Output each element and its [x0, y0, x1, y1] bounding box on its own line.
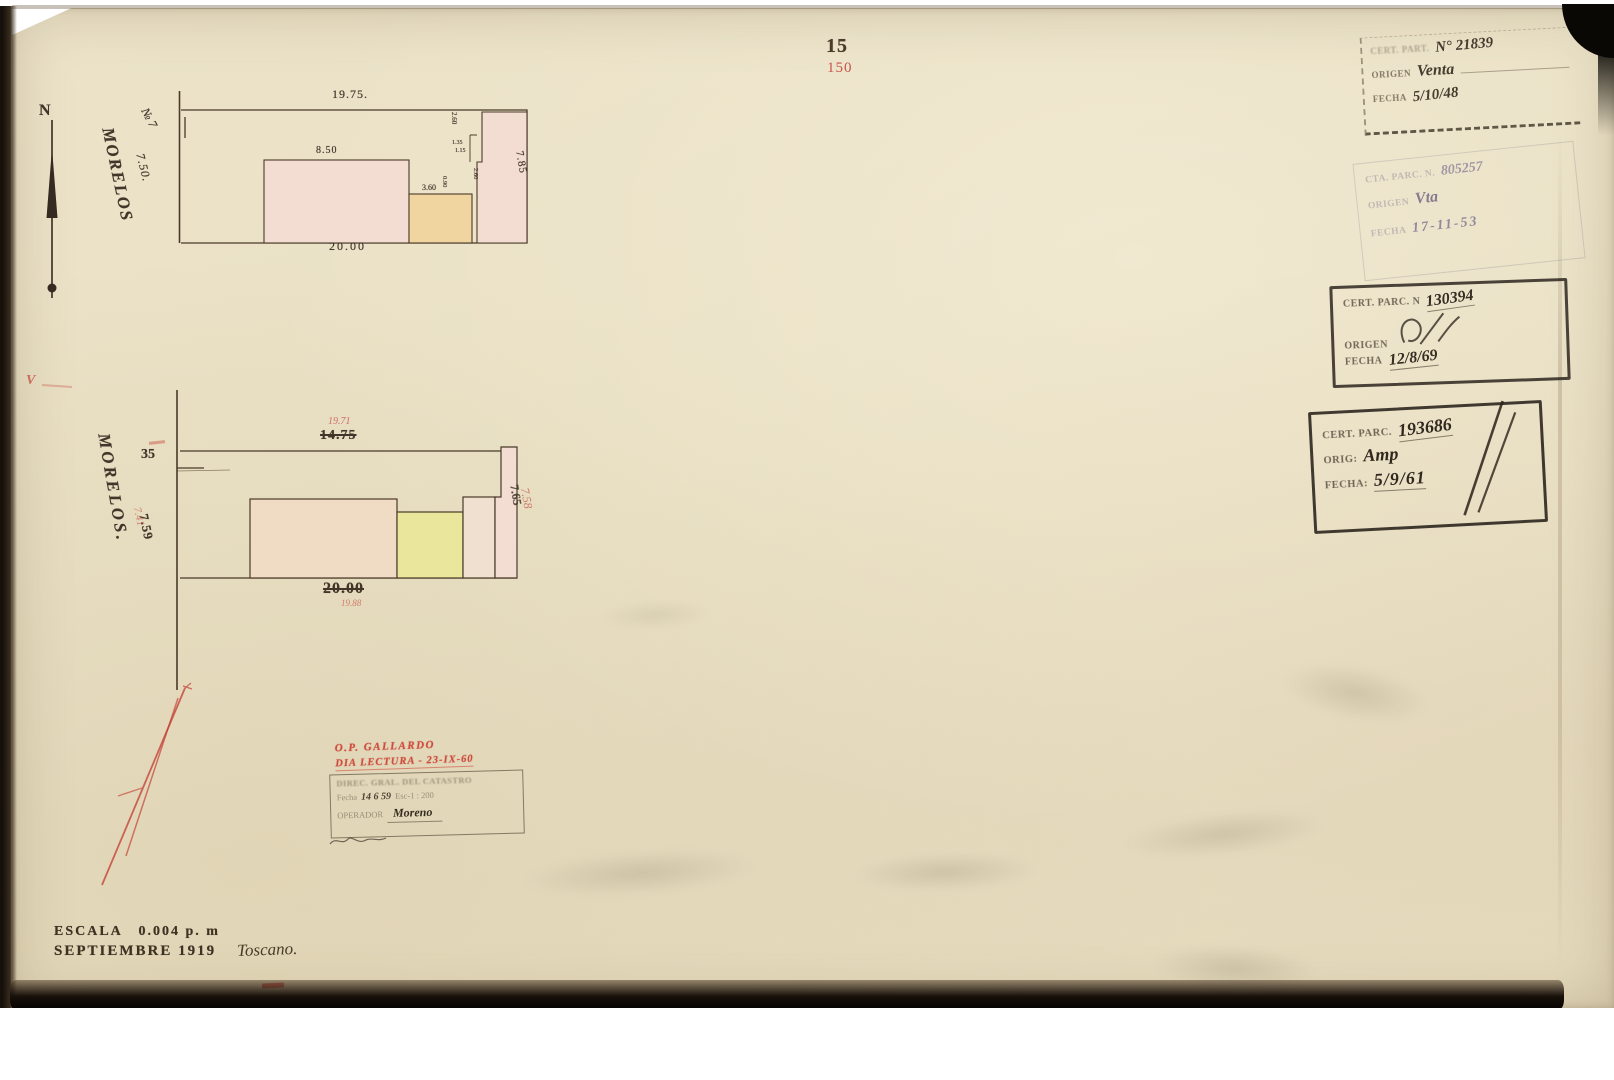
- cert-number: 805257: [1440, 159, 1483, 179]
- red-check-mark: V: [26, 374, 35, 388]
- fecha-value: 5/10/48: [1412, 84, 1459, 106]
- escala-ratio: Esc-1 : 200: [395, 790, 434, 801]
- operador-value: Moreno: [387, 805, 443, 823]
- sheet-number-red: 150: [827, 61, 853, 76]
- fecha-label: Fecha: [337, 792, 358, 803]
- origen-label: ORIGEN: [1367, 197, 1409, 211]
- d1-small-dim: 1.15: [455, 148, 466, 154]
- escala-line: ESCALA 0.004 p. m: [54, 925, 220, 939]
- origen-label: ORIGEN: [1371, 68, 1411, 80]
- red-operator-note: O.P. GALLARDO DIA LECTURA - 23-IX-60: [335, 738, 474, 772]
- d2-top-dim-old: 14.75: [320, 429, 357, 443]
- d1-patio-dim: 3.60: [422, 184, 436, 192]
- fecha-value: 5/9/61: [1373, 467, 1426, 492]
- origen-label: ORIGEN: [1344, 339, 1388, 352]
- d2-top-dim-red: 19.71: [328, 417, 351, 427]
- d2-bottom-dim-red: 19.88: [341, 599, 361, 608]
- cert-label: CERT. PARC.: [1322, 427, 1392, 442]
- fecha-label: FECHA: [1370, 226, 1407, 240]
- diagram-2-drawing: [160, 385, 560, 695]
- scanned-plan-sheet: 15 150 N V 19.75. 20.00 8.50 3.60 2.60 1…: [0, 0, 1614, 1080]
- d1-bottom-dim: 20.00: [329, 240, 366, 252]
- cert-label: CERT. PART.: [1370, 43, 1430, 56]
- fecha-value: 17-11-53: [1411, 214, 1479, 237]
- fecha-value: 12/8/69: [1388, 347, 1439, 371]
- survey-stamp-header: DIREC. GRAL. DEL CATASTRO: [336, 774, 516, 789]
- d1-top-dim: 19.75.: [332, 88, 368, 100]
- scan-edge-right: [1598, 40, 1614, 135]
- d2-right-dim-red: 7.58: [519, 487, 534, 510]
- registry-stamp-1953: CTA. PARC. N. 805257 ORIGEN Vta FECHA 17…: [1352, 141, 1585, 282]
- d2-house-number: 35: [141, 448, 155, 462]
- north-arrow-icon: [40, 120, 64, 305]
- registry-stamp-1948: CERT. PART. N° 21839 ORIGEN Venta FECHA …: [1360, 26, 1581, 135]
- cert-number: 130394: [1425, 287, 1475, 312]
- signature-scribble: [328, 833, 390, 849]
- scan-edge-left: [0, 6, 17, 1010]
- d2-right-dim-group: 7.65 7.58: [505, 483, 526, 507]
- scan-margin-bottom: [0, 1008, 1614, 1080]
- registry-stamp-1969: CERT. PARC. N 130394 ORIGEN FECHA 12/8/6…: [1329, 278, 1570, 388]
- orig-label: ORIG:: [1323, 454, 1358, 467]
- orig-value: Amp: [1363, 444, 1399, 467]
- operador-label: OPERADOR: [337, 809, 383, 820]
- stamp-slash-scribble: [1440, 390, 1537, 525]
- fecha-label: FECHA: [1373, 92, 1407, 104]
- fecha-label: FECHA: [1345, 355, 1383, 367]
- d2-bottom-dim-old: 20.00: [323, 581, 364, 597]
- scan-edge-top: [12, 5, 1564, 9]
- registry-stamp-1961: CERT. PARC. 193686 ORIG: Amp FECHA: 5/9/…: [1308, 400, 1548, 534]
- cert-label: CERT. PARC. N: [1343, 296, 1421, 310]
- origen-value: Venta: [1416, 61, 1454, 81]
- d1-small-dim: 2.60: [450, 112, 457, 124]
- d1-building-dim: 8.50: [316, 146, 338, 156]
- fecha-line: SEPTIEMBRE 1919: [54, 944, 216, 959]
- cert-number: N° 21839: [1435, 35, 1494, 57]
- survey-stamp-box: DIREC. GRAL. DEL CATASTRO Fecha 14 6 59 …: [329, 769, 525, 838]
- north-label: N: [39, 103, 51, 119]
- fecha-label: FECHA:: [1325, 478, 1369, 491]
- cert-label: CTA. PARC. N.: [1365, 168, 1436, 185]
- diagram-1-drawing: [160, 85, 545, 260]
- sheet-number: 15: [826, 36, 848, 56]
- origin-scribble: [1393, 310, 1466, 346]
- origen-value: Vta: [1414, 188, 1439, 208]
- d1-small-dim: 0.90: [441, 176, 448, 187]
- red-survey-strokes: [88, 682, 198, 894]
- scan-edge-bottom: [10, 980, 1564, 1010]
- fecha-value: 14 6 59: [361, 791, 391, 803]
- d1-small-dim: 2.60: [472, 168, 479, 179]
- author-signature: Toscano.: [237, 940, 298, 959]
- stamp-rule: [1460, 67, 1569, 74]
- d1-small-dim: 1.35: [452, 140, 463, 146]
